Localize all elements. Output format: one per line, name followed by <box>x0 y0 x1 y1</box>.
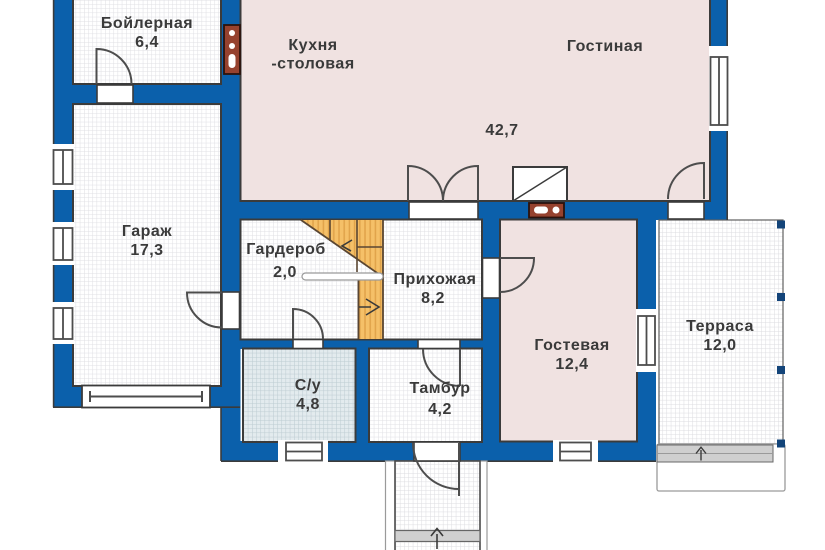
svg-text:Гостиная: Гостиная <box>567 38 643 55</box>
svg-text:4,8: 4,8 <box>296 396 320 413</box>
svg-text:12,4: 12,4 <box>555 356 588 373</box>
svg-text:42,7: 42,7 <box>485 122 518 139</box>
svg-text:С/у: С/у <box>295 377 321 394</box>
svg-text:Тамбур: Тамбур <box>409 380 470 397</box>
svg-text:2,0: 2,0 <box>273 264 297 281</box>
svg-text:4,2: 4,2 <box>428 401 452 418</box>
svg-text:Прихожая: Прихожая <box>394 271 477 288</box>
svg-text:Гардероб: Гардероб <box>246 241 326 258</box>
svg-text:Гостевая: Гостевая <box>534 337 609 354</box>
svg-text:Терраса: Терраса <box>686 318 754 335</box>
svg-text:8,2: 8,2 <box>421 290 445 307</box>
svg-text:Кухня: Кухня <box>288 37 337 54</box>
svg-text:6,4: 6,4 <box>135 34 159 51</box>
svg-text:17,3: 17,3 <box>130 242 163 259</box>
svg-text:Бойлерная: Бойлерная <box>101 15 193 32</box>
svg-text:Гараж: Гараж <box>122 223 172 240</box>
svg-text:-столовая: -столовая <box>271 56 354 73</box>
svg-text:12,0: 12,0 <box>703 337 736 354</box>
